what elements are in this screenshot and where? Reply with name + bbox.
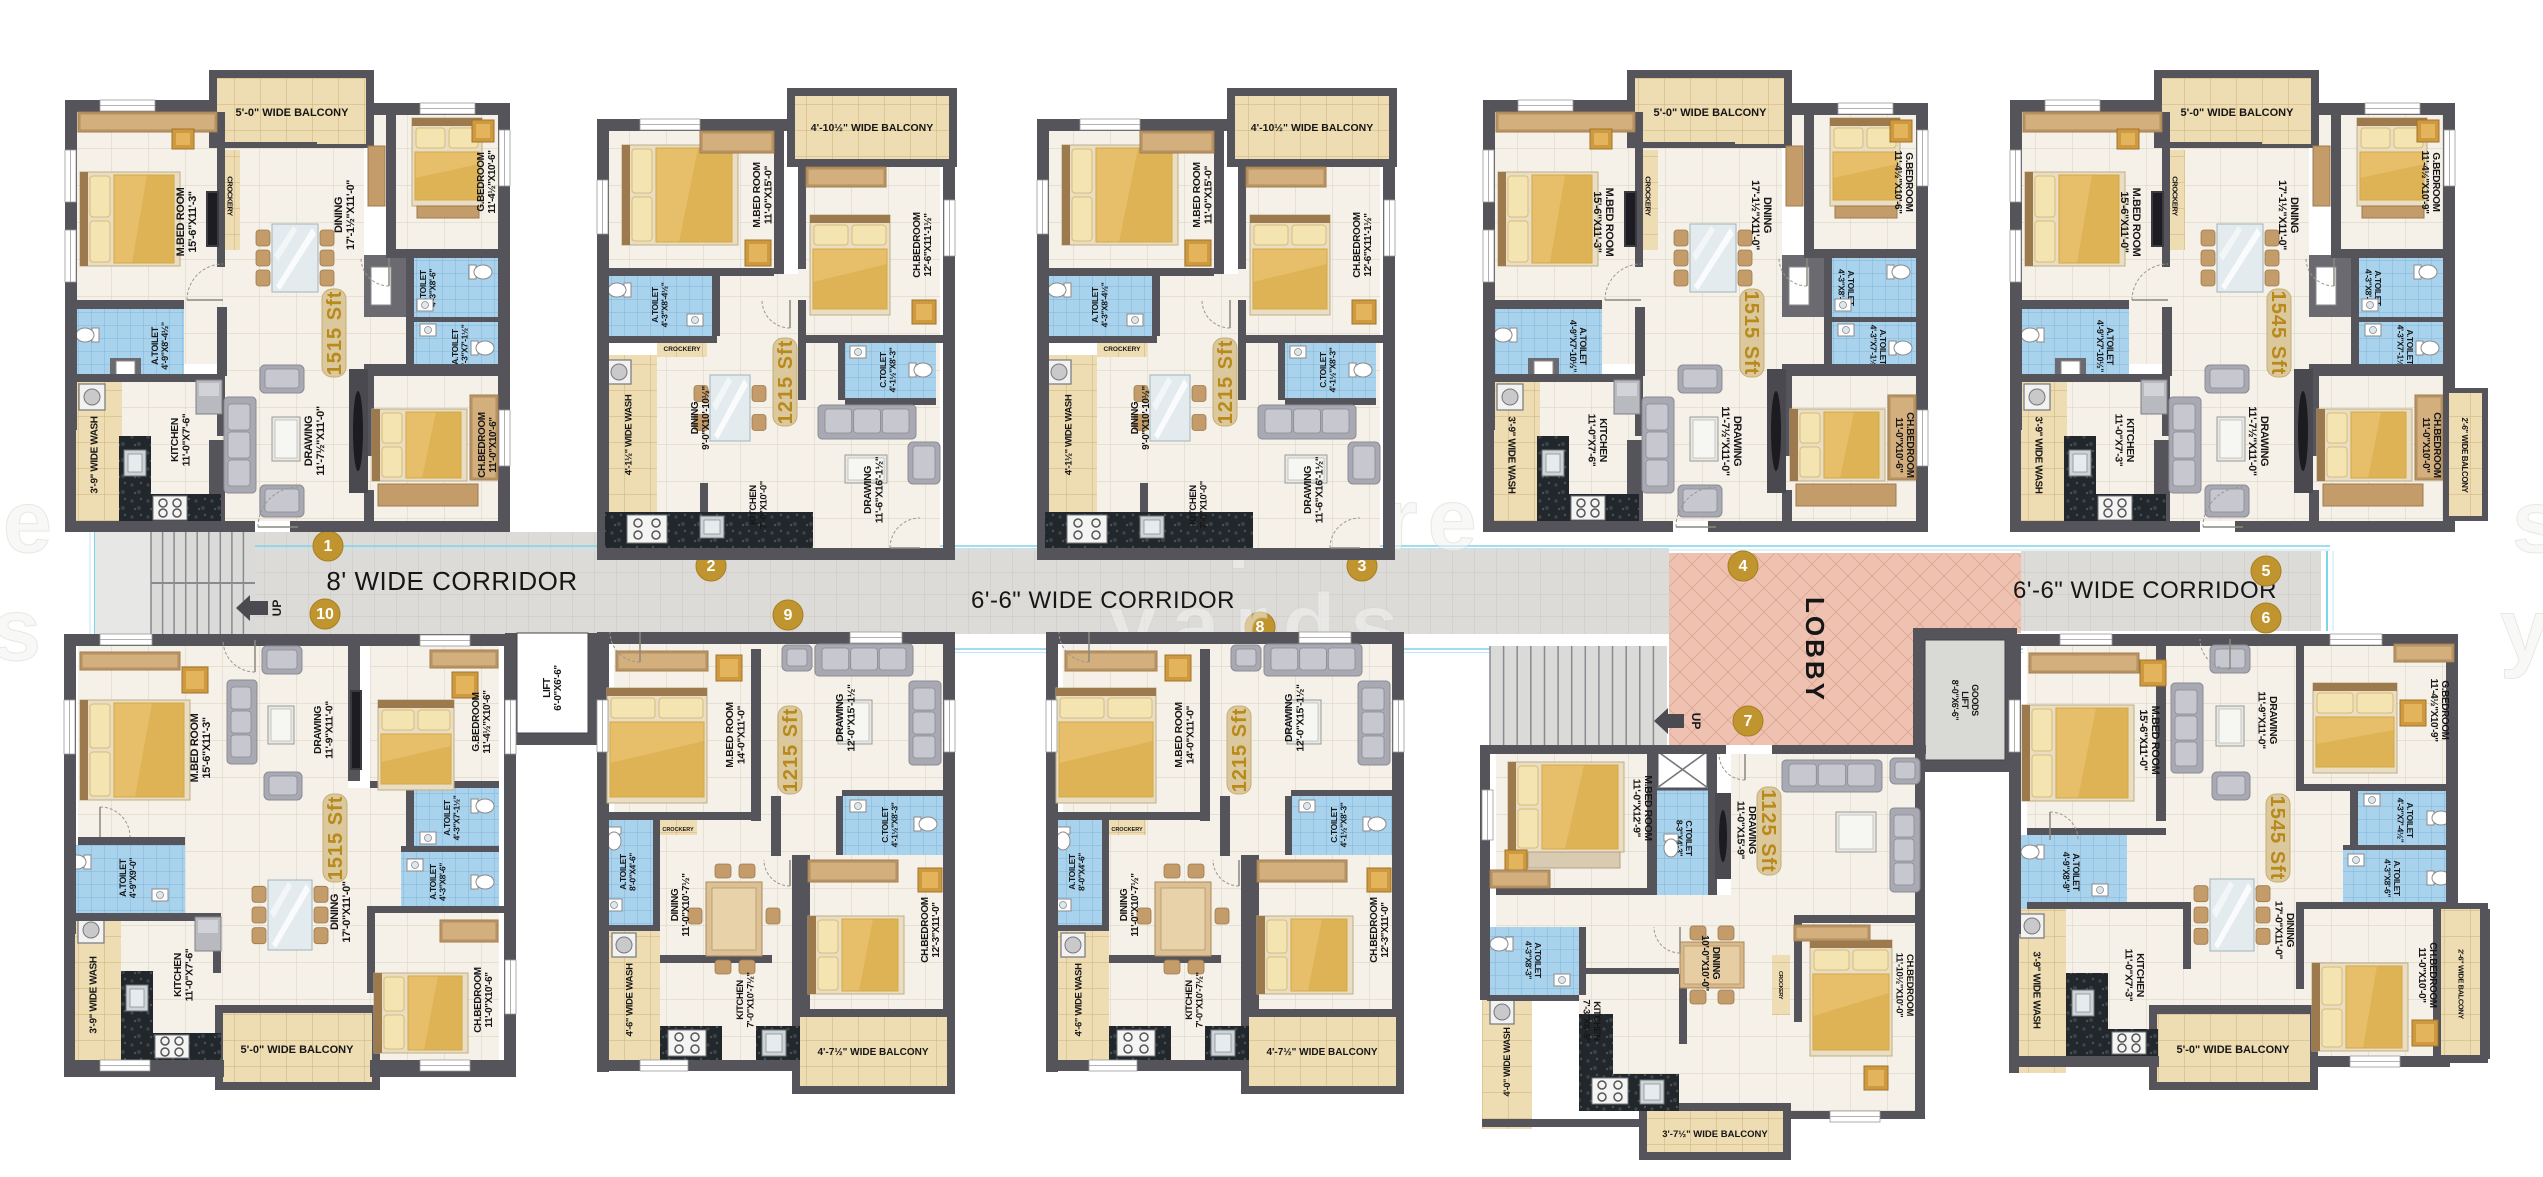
svg-text:4'-7½" WIDE BALCONY: 4'-7½" WIDE BALCONY xyxy=(817,1047,928,1058)
svg-text:4'-10½" WIDE BALCONY: 4'-10½" WIDE BALCONY xyxy=(1251,122,1373,134)
svg-text:5'-0" WIDE BALCONY: 5'-0" WIDE BALCONY xyxy=(1654,107,1768,119)
svg-text:DRAWING12'-0"X15'-1½": DRAWING12'-0"X15'-1½" xyxy=(834,684,858,752)
svg-text:5'-0" WIDE BALCONY: 5'-0" WIDE BALCONY xyxy=(241,1044,355,1056)
svg-text:CROCKERY: CROCKERY xyxy=(1104,346,1142,353)
svg-text:C.TOILET4'-1½"X8'-3": C.TOILET4'-1½"X8'-3" xyxy=(878,347,898,392)
svg-text:DRAWING11'-7½"X11'-0": DRAWING11'-7½"X11'-0" xyxy=(2246,406,2270,476)
svg-text:M.BED ROOM15'-6"X11'-0": M.BED ROOM15'-6"X11'-0" xyxy=(2137,706,2161,775)
svg-text:M.BED ROOM15'-6"X11'-3": M.BED ROOM15'-6"X11'-3" xyxy=(1591,188,1615,257)
svg-text:M.BED ROOM11'-0"X15'-0": M.BED ROOM11'-0"X15'-0" xyxy=(1191,162,1215,228)
svg-text:A.TOILET4'-3"X7'-1½": A.TOILET4'-3"X7'-1½" xyxy=(450,324,470,369)
svg-text:CROCKERY: CROCKERY xyxy=(1777,971,1783,1000)
svg-text:9: 9 xyxy=(784,607,793,624)
svg-text:1545 Sft: 1545 Sft xyxy=(2267,291,2289,376)
svg-text:5'-0" WIDE BALCONY: 5'-0" WIDE BALCONY xyxy=(236,107,350,119)
svg-text:4: 4 xyxy=(1739,558,1748,575)
svg-text:4'-6" WIDE WASH: 4'-6" WIDE WASH xyxy=(624,963,635,1037)
svg-text:4'-7½" WIDE BALCONY: 4'-7½" WIDE BALCONY xyxy=(1266,1047,1377,1058)
svg-text:1515 Sft: 1515 Sft xyxy=(1740,291,1762,376)
svg-text:3'-9" WIDE WASH: 3'-9" WIDE WASH xyxy=(2033,416,2044,493)
svg-text:DRAWING11'-6"X16'-1½": DRAWING11'-6"X16'-1½" xyxy=(1302,456,1326,523)
svg-text:A.TOILET4'-9"X8'-9": A.TOILET4'-9"X8'-9" xyxy=(2061,852,2081,893)
svg-text:10: 10 xyxy=(316,606,334,623)
svg-text:4'-6" WIDE WASH: 4'-6" WIDE WASH xyxy=(1073,963,1084,1037)
svg-text:CROCKERY: CROCKERY xyxy=(1643,176,1652,216)
svg-text:DRAWING11'-0"X15'-9": DRAWING11'-0"X15'-9" xyxy=(1735,801,1759,860)
svg-text:5'-0" WIDE BALCONY: 5'-0" WIDE BALCONY xyxy=(2181,107,2295,119)
svg-text:2'-6" WIDE BALCONY: 2'-6" WIDE BALCONY xyxy=(2460,418,2469,494)
svg-text:A.TOILET8'-0"X4'-6": A.TOILET8'-0"X4'-6" xyxy=(1067,853,1087,891)
svg-text:6'-6" WIDE CORRIDOR: 6'-6" WIDE CORRIDOR xyxy=(2013,577,2277,604)
svg-text:1215 Sft: 1215 Sft xyxy=(1229,708,1251,793)
svg-text:1215 Sft: 1215 Sft xyxy=(775,340,797,425)
svg-text:square: square xyxy=(2512,472,2543,571)
svg-text:CH.BEDROOM11'-0"X10'-6": CH.BEDROOM11'-0"X10'-6" xyxy=(473,967,495,1033)
svg-text:CH.BEDROOM11'-0"X10'-6": CH.BEDROOM11'-0"X10'-6" xyxy=(477,412,499,478)
svg-text:M.BED ROOM14'-0"X11'-0": M.BED ROOM14'-0"X11'-0" xyxy=(724,702,748,768)
svg-text:3'-9" WIDE WASH: 3'-9" WIDE WASH xyxy=(89,956,100,1033)
svg-text:CH.BEDROOM12'-6"X11'-1½": CH.BEDROOM12'-6"X11'-1½" xyxy=(1352,212,1374,278)
svg-text:UP: UP xyxy=(270,600,284,617)
svg-text:CROCKERY: CROCKERY xyxy=(2170,176,2179,216)
svg-text:1125 Sft: 1125 Sft xyxy=(1757,789,1779,873)
svg-text:3'-9" WIDE WASH: 3'-9" WIDE WASH xyxy=(2031,951,2042,1028)
svg-text:M.BED ROOM15'-6"X11'-3": M.BED ROOM15'-6"X11'-3" xyxy=(175,187,199,256)
svg-text:G.BEDROOM11'-4½"X10'-9": G.BEDROOM11'-4½"X10'-9" xyxy=(2428,678,2450,742)
svg-text:DRAWING11'-7½"X11'-0": DRAWING11'-7½"X11'-0" xyxy=(303,406,327,476)
svg-text:5: 5 xyxy=(2262,563,2271,580)
svg-text:A.TOILET4'-3"X8'-6": A.TOILET4'-3"X8'-6" xyxy=(428,863,448,901)
svg-text:CH.BEDROOM11'-0"X10'-0": CH.BEDROOM11'-0"X10'-0" xyxy=(2416,942,2438,1008)
svg-text:7: 7 xyxy=(1744,713,1753,730)
svg-text:C.TOILET4'-1½"X8'-3": C.TOILET4'-1½"X8'-3" xyxy=(1329,802,1349,847)
svg-text:LOBBY: LOBBY xyxy=(1800,597,1830,703)
svg-text:M.BED ROOM11'-0"X12'-9": M.BED ROOM11'-0"X12'-9" xyxy=(1631,775,1655,841)
svg-text:KITCHEN7'-0"X10'-0": KITCHEN7'-0"X10'-0" xyxy=(1188,481,1210,529)
svg-text:DRAWING11'-7½"X11'-0": DRAWING11'-7½"X11'-0" xyxy=(1719,406,1743,476)
svg-text:M.BED ROOM11'-0"X15'-0": M.BED ROOM11'-0"X15'-0" xyxy=(751,162,775,228)
svg-text:A.TOILET4'-3"X7'-1½": A.TOILET4'-3"X7'-1½" xyxy=(1868,325,1888,370)
svg-text:2: 2 xyxy=(707,558,716,575)
svg-text:KITCHEN11'-0"X7'-6": KITCHEN11'-0"X7'-6" xyxy=(169,413,193,466)
svg-text:DRAWING11'-9"X11'-0": DRAWING11'-9"X11'-0" xyxy=(312,701,336,759)
svg-text:C.TOILET4'-1½"X8'-3": C.TOILET4'-1½"X8'-3" xyxy=(880,802,900,847)
svg-text:G.BEDROOM11'-4½"X10'-9": G.BEDROOM11'-4½"X10'-9" xyxy=(2419,150,2441,214)
svg-text:yards: yards xyxy=(2500,580,2543,679)
svg-text:4'-1½" WIDE WASH: 4'-1½" WIDE WASH xyxy=(623,394,634,475)
svg-text:A.TOILET4'-9"X7'-10½": A.TOILET4'-9"X7'-10½" xyxy=(2095,320,2115,372)
svg-text:A.TOILET4'-3"X7'-1½": A.TOILET4'-3"X7'-1½" xyxy=(442,795,462,840)
svg-text:M.BED ROOM15'-6"X11'-0": M.BED ROOM15'-6"X11'-0" xyxy=(2118,188,2142,257)
svg-text:CH.BEDROOM11'-0"X10'-6": CH.BEDROOM11'-0"X10'-6" xyxy=(1893,412,1915,478)
svg-text:G.BEDROOM11'-4½"X10'-6": G.BEDROOM11'-4½"X10'-6" xyxy=(1892,150,1914,214)
svg-text:1215 Sft: 1215 Sft xyxy=(1215,340,1237,425)
svg-text:CROCKERY: CROCKERY xyxy=(225,176,234,216)
svg-text:CH.BEDROOM12'-3"X11'-0": CH.BEDROOM12'-3"X11'-0" xyxy=(1369,897,1391,963)
svg-text:DRAWING11'-9"X11'-0": DRAWING11'-9"X11'-0" xyxy=(2256,691,2280,749)
svg-text:M.BED ROOM14'-0"X11'-0": M.BED ROOM14'-0"X11'-0" xyxy=(1173,702,1197,768)
svg-text:A.TOILET4'-9"X8'-4½": A.TOILET4'-9"X8'-4½" xyxy=(150,322,170,370)
svg-text:KITCHEN11'-0"X7'-6": KITCHEN11'-0"X7'-6" xyxy=(1586,414,1610,467)
svg-text:A.TOILET4'-3"X8'-4½": A.TOILET4'-3"X8'-4½" xyxy=(1090,282,1110,327)
svg-text:4'-10½" WIDE BALCONY: 4'-10½" WIDE BALCONY xyxy=(811,122,933,134)
svg-text:UP: UP xyxy=(1689,713,1703,730)
svg-text:1515 Sft: 1515 Sft xyxy=(324,291,346,376)
svg-text:6: 6 xyxy=(2262,610,2271,627)
svg-text:4'-0" WIDE WASH: 4'-0" WIDE WASH xyxy=(1502,1028,1512,1097)
svg-text:4'-1½" WIDE WASH: 4'-1½" WIDE WASH xyxy=(1063,394,1074,475)
svg-text:KITCHEN7'-3"X8'-9": KITCHEN7'-3"X8'-9" xyxy=(1580,1000,1602,1043)
svg-text:square: square xyxy=(0,472,62,571)
svg-text:KITCHEN11'-0"X7'-3": KITCHEN11'-0"X7'-3" xyxy=(2113,414,2137,467)
svg-text:3'-9" WIDE WASH: 3'-9" WIDE WASH xyxy=(1506,416,1517,493)
svg-text:8' WIDE CORRIDOR: 8' WIDE CORRIDOR xyxy=(326,566,577,596)
svg-text:A.TOILET4'-9"X7'-10½": A.TOILET4'-9"X7'-10½" xyxy=(1568,320,1588,372)
svg-text:KITCHEN11'-0"X7'-3": KITCHEN11'-0"X7'-3" xyxy=(2123,949,2147,1002)
svg-text:DRAWING11'-6"X16'-1½": DRAWING11'-6"X16'-1½" xyxy=(862,456,886,523)
svg-text:1515 Sft: 1515 Sft xyxy=(325,796,347,881)
svg-text:KITCHEN7'-0"X10'-0": KITCHEN7'-0"X10'-0" xyxy=(748,481,770,529)
svg-text:CH.BEDROOM12'-3"X11'-0": CH.BEDROOM12'-3"X11'-0" xyxy=(920,897,942,963)
svg-text:G.BEDROOM11'-4½"X10'-6": G.BEDROOM11'-4½"X10'-6" xyxy=(471,690,493,754)
svg-text:CROCKERY: CROCKERY xyxy=(1111,827,1143,833)
svg-text:M.BED ROOM15'-6"X11'-3": M.BED ROOM15'-6"X11'-3" xyxy=(189,713,213,782)
svg-text:3'-7½" WIDE BALCONY: 3'-7½" WIDE BALCONY xyxy=(1662,1129,1768,1140)
svg-text:A.TOILET4'-3"X8'-6": A.TOILET4'-3"X8'-6" xyxy=(2382,859,2402,897)
svg-text:A.TOILET4'-3"X7'-4½": A.TOILET4'-3"X7'-4½" xyxy=(2395,798,2415,843)
svg-text:G.BEDROOM11'-4½"X10'-6": G.BEDROOM11'-4½"X10'-6" xyxy=(476,150,498,214)
svg-text:CH.BEDROOM11'-10½"X10'-0": CH.BEDROOM11'-10½"X10'-0" xyxy=(1893,953,1915,1018)
svg-text:1545 Sft: 1545 Sft xyxy=(2266,796,2288,881)
svg-text:A.TOILET8'-0"X4'-6": A.TOILET8'-0"X4'-6" xyxy=(618,853,638,891)
svg-text:KITCHEN11'-0"X7'-6": KITCHEN11'-0"X7'-6" xyxy=(172,948,196,1001)
svg-text:1215 Sft: 1215 Sft xyxy=(780,708,802,793)
svg-text:A.TOILET4'-3"X8'-4½": A.TOILET4'-3"X8'-4½" xyxy=(650,282,670,327)
svg-text:1: 1 xyxy=(324,538,333,555)
svg-text:C.TOILET4'-1½"X8'-3": C.TOILET4'-1½"X8'-3" xyxy=(1318,347,1338,392)
svg-text:5'-0" WIDE BALCONY: 5'-0" WIDE BALCONY xyxy=(2177,1044,2291,1056)
svg-text:KITCHEN7'-0"X10'-7½": KITCHEN7'-0"X10'-7½" xyxy=(1184,972,1206,1027)
svg-text:3'-9" WIDE WASH: 3'-9" WIDE WASH xyxy=(90,416,101,493)
svg-text:CROCKERY: CROCKERY xyxy=(662,827,694,833)
svg-text:yards: yards xyxy=(0,580,55,679)
svg-text:A.TOILET4'-3"X7'-1½": A.TOILET4'-3"X7'-1½" xyxy=(2395,325,2415,370)
svg-text:CH.BEDROOM12'-6"X11'-1½": CH.BEDROOM12'-6"X11'-1½" xyxy=(912,212,934,278)
svg-text:KITCHEN7'-0"X10'-7½": KITCHEN7'-0"X10'-7½" xyxy=(735,972,757,1027)
svg-text:CROCKERY: CROCKERY xyxy=(664,346,702,353)
svg-text:A.TOILET4'-3"X8'-3": A.TOILET4'-3"X8'-3" xyxy=(1523,941,1543,979)
svg-text:2'-6" WIDE BALCONY: 2'-6" WIDE BALCONY xyxy=(2456,949,2465,1019)
svg-text:A.TOILET4'-9"X9'-0": A.TOILET4'-9"X9'-0" xyxy=(118,858,138,899)
svg-text:CH.BEDROOM11'-0"X10'-0": CH.BEDROOM11'-0"X10'-0" xyxy=(2420,412,2442,478)
svg-text:DRAWING12'-0"X15'-1½": DRAWING12'-0"X15'-1½" xyxy=(1283,684,1307,752)
